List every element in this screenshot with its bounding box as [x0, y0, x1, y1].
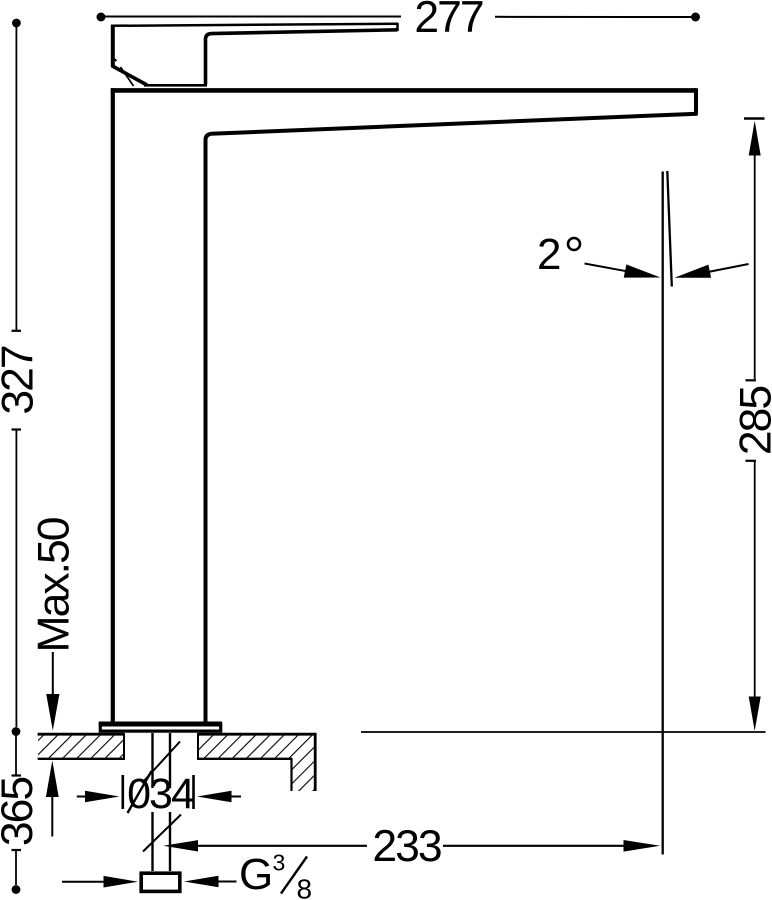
- svg-text:Max.50: Max.50: [30, 517, 79, 652]
- svg-text:8: 8: [297, 874, 313, 900]
- svg-text:277: 277: [414, 0, 482, 42]
- svg-text:233: 233: [372, 822, 440, 871]
- svg-text:2: 2: [537, 230, 561, 279]
- svg-text:3: 3: [273, 850, 286, 876]
- svg-text:365: 365: [0, 778, 42, 846]
- svg-text:G: G: [239, 850, 273, 899]
- svg-text:285: 285: [732, 387, 772, 455]
- svg-text:327: 327: [0, 346, 43, 414]
